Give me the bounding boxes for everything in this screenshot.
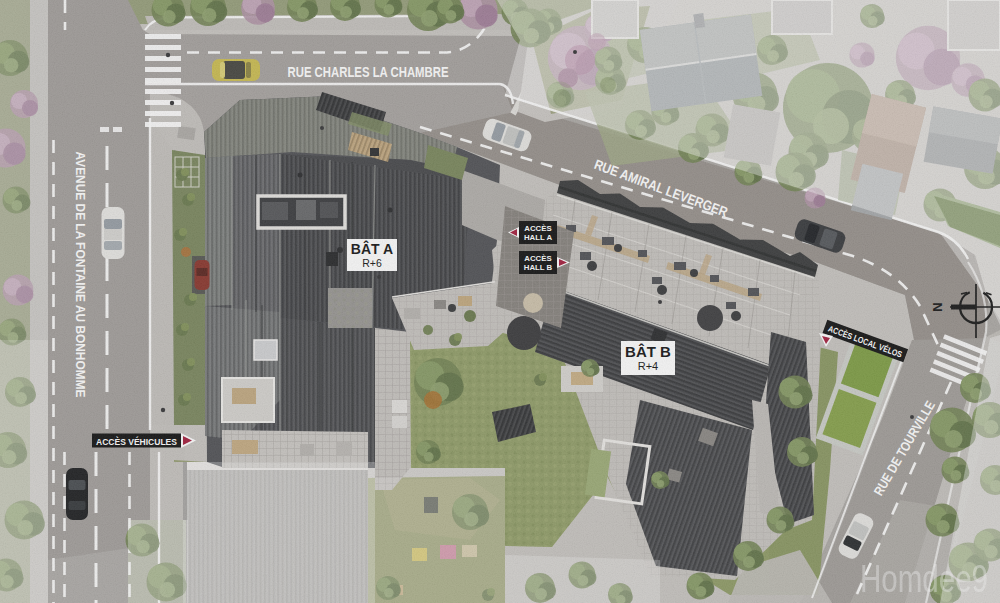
- svg-text:R+4: R+4: [638, 360, 659, 372]
- svg-text:HALL A: HALL A: [524, 233, 553, 242]
- svg-text:AVENUE DE LA FONTAINE AU BONHO: AVENUE DE LA FONTAINE AU BONHOMME: [73, 152, 88, 398]
- svg-text:ACCÈS VÉHICULES: ACCÈS VÉHICULES: [96, 436, 177, 447]
- svg-text:ACCÈS: ACCÈS: [524, 224, 551, 233]
- svg-text:BÂT A: BÂT A: [351, 240, 393, 257]
- svg-text:Homdee9: Homdee9: [860, 558, 988, 600]
- svg-text:BÂT B: BÂT B: [625, 343, 671, 360]
- svg-text:ACCÈS: ACCÈS: [524, 254, 551, 263]
- svg-text:RUE CHARLES LA CHAMBRE: RUE CHARLES LA CHAMBRE: [288, 64, 449, 80]
- svg-text:N: N: [930, 302, 945, 311]
- svg-text:HALL B: HALL B: [524, 263, 553, 272]
- svg-text:R+6: R+6: [362, 257, 382, 269]
